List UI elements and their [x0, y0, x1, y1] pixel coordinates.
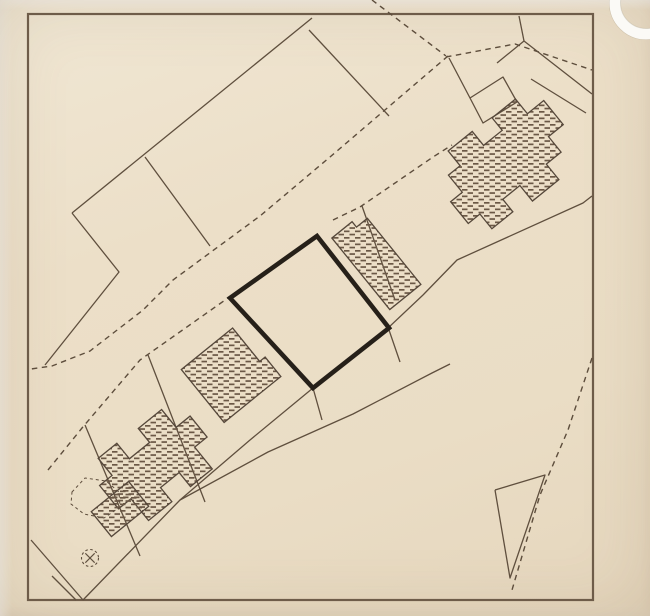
parcel-division-right: [309, 30, 389, 116]
connector-at-plot-bottom-corner: [313, 388, 322, 420]
building-complex-northeast-group: [425, 84, 589, 241]
building-slim-east-of-plot: [332, 213, 421, 310]
bottom-left-line-a: [31, 540, 83, 600]
connector-at-plot-right-corner: [389, 330, 400, 362]
top-right-parcel-line-b: [519, 16, 524, 41]
path-fork-right: [446, 44, 592, 70]
parcel-boundary-upper-left: [72, 18, 312, 213]
building-slim-east-of-plot-group: [332, 213, 421, 310]
path-fork-left: [372, 0, 446, 56]
site-plan-drawing: [0, 0, 650, 616]
boundary-bottom-right-curve: [512, 358, 592, 590]
parcel-boundary-upper-left-bend: [45, 213, 119, 365]
top-right-parcel-line-a: [497, 41, 592, 94]
building-complex-northeast: [425, 84, 589, 241]
road-edge-lower-continuation: [333, 145, 452, 220]
bottom-right-triangle-parcel: [495, 475, 545, 578]
parcel-division-left: [145, 157, 210, 246]
scanned-site-plan: [0, 0, 650, 616]
